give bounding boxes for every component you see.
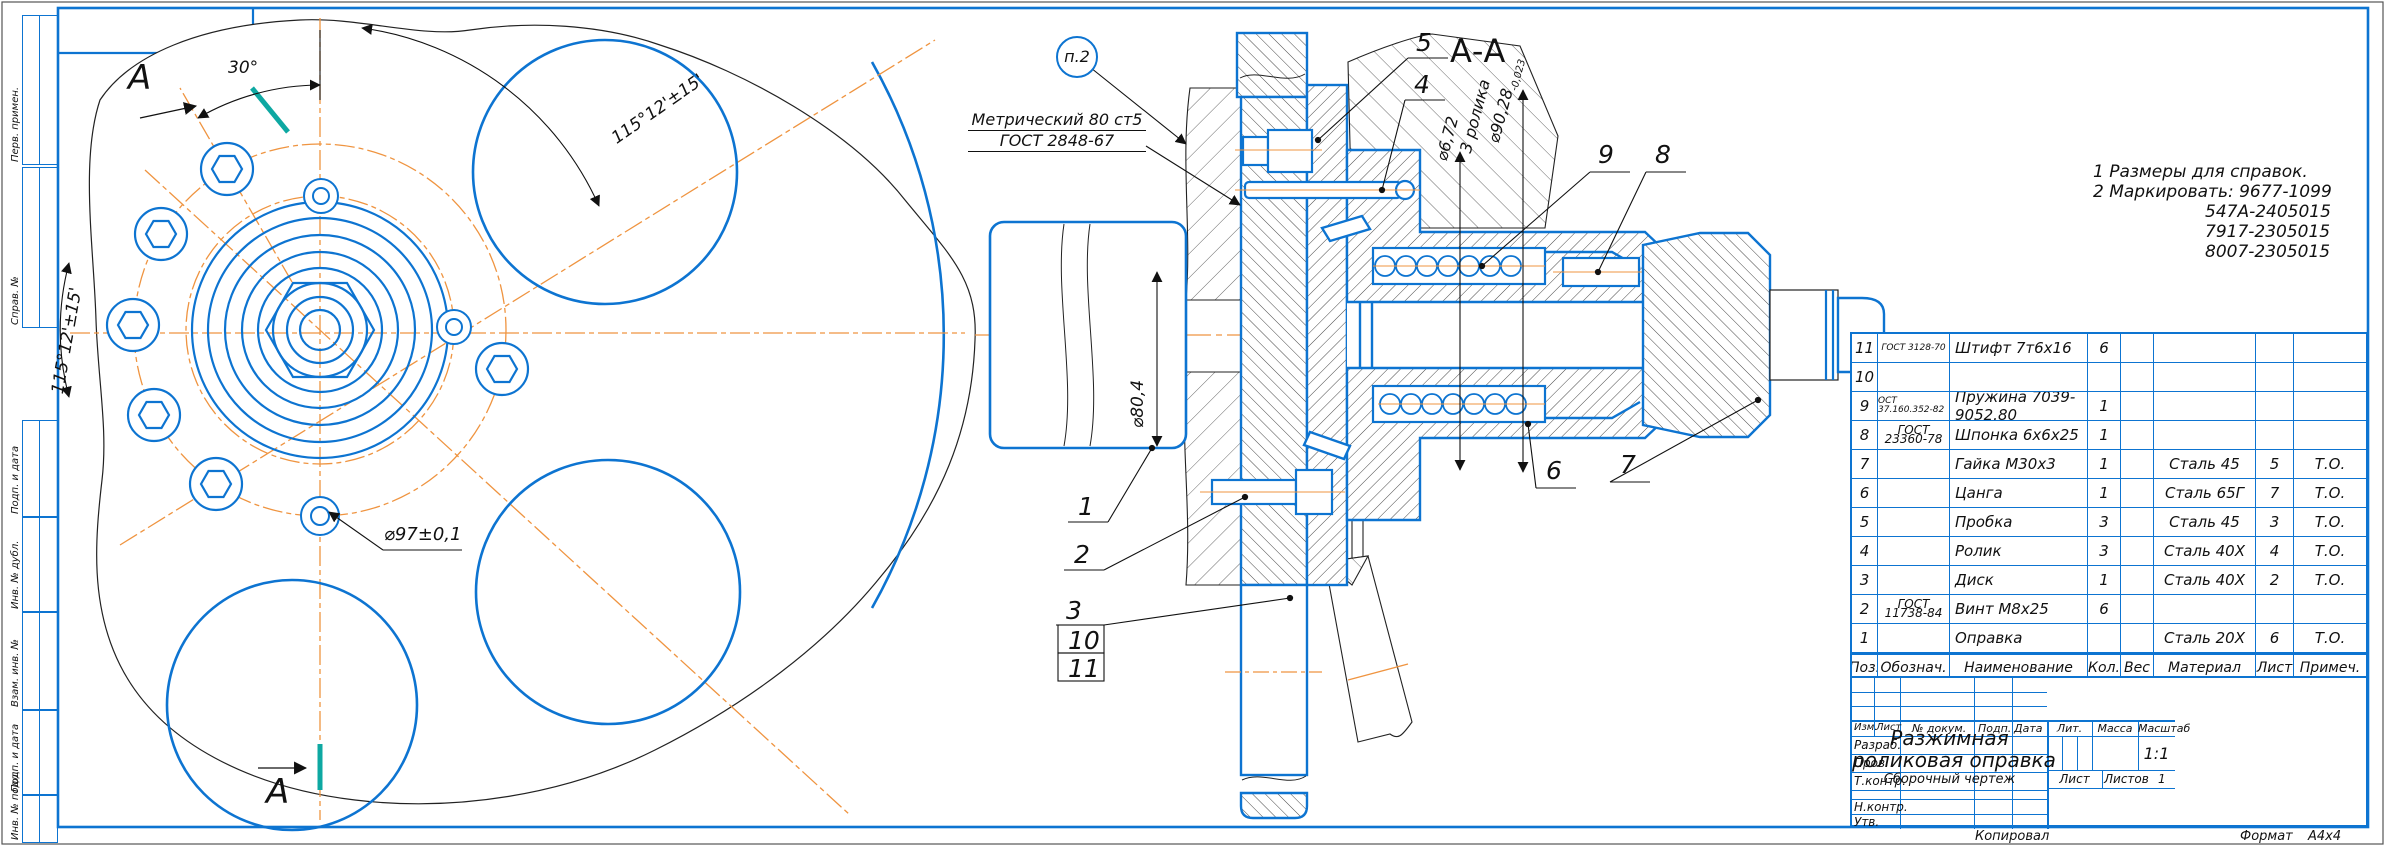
tb-mass-label: Масса: [2092, 722, 2138, 735]
cell-name: Цанга: [1950, 479, 2088, 508]
table-row: 3 Диск 1 Сталь 40Х 2 Т.О.: [1852, 566, 2366, 595]
cell-pos: 3: [1852, 566, 1878, 595]
table-row: 11 ГОСТ 3128-70 Штифт 7т6х16 6: [1852, 334, 2366, 363]
cell-pos: 6: [1852, 479, 1878, 508]
doc-line: ОСТ 37.160.352-82: [1878, 397, 1949, 415]
table-row: 7 Гайка М30х3 1 Сталь 45 5 Т.О.: [1852, 450, 2366, 479]
cell-note: [2294, 334, 2366, 363]
cell-pos: 4: [1852, 537, 1878, 566]
title-block: Изм. Лист № докум. Подп. Дата Разраб. Пр…: [1850, 676, 2368, 827]
cell-name: Ролик: [1950, 537, 2088, 566]
callout-9: 9: [1598, 140, 1614, 169]
drawing-sheet: { "colors":{"line_blue":"#0d74d1","cente…: [0, 0, 2385, 846]
cell-doc: [1878, 450, 1950, 479]
cell-pos: 8: [1852, 421, 1878, 450]
cell-name: Гайка М30х3: [1950, 450, 2088, 479]
cell-doc: ГОСТ23360-78: [1878, 421, 1950, 450]
cell-qty: [2088, 363, 2121, 392]
cell-name: Диск: [1950, 566, 2088, 595]
keyway: [1553, 258, 1650, 286]
cell-sheet: [2256, 595, 2294, 624]
cell-pos: 7: [1852, 450, 1878, 479]
cell-material: [2154, 334, 2256, 363]
cell-note: Т.О.: [2294, 479, 2366, 508]
cell-qty: 1: [2088, 566, 2121, 595]
frame-label-inv-dubl: Инв. № дубл.: [22, 517, 58, 612]
cell-sheet: 4: [2256, 537, 2294, 566]
technical-notes: 1 Размеры для справок. 2 Маркировать: 96…: [2093, 162, 2332, 262]
note-line: 7917-2305015: [2205, 222, 2332, 242]
cell-doc: ГОСТ11738-84: [1878, 595, 1950, 624]
callout-3: 3: [1066, 596, 1082, 625]
footer-copied: Копировал: [1975, 829, 2049, 844]
cell-weight: [2121, 334, 2154, 363]
cell-pos: 11: [1852, 334, 1878, 363]
frame-label-vzam-inv: Взам. инв. №: [22, 612, 58, 710]
tb-lit-label: Лит.: [2047, 722, 2092, 735]
frame-label-text: Перв. примен.: [10, 87, 21, 162]
cell-name: Оправка: [1950, 624, 2088, 653]
cell-note: [2294, 421, 2366, 450]
callout-6: 6: [1546, 456, 1562, 485]
cell-note: Т.О.: [2294, 537, 2366, 566]
cell-sheet: [2256, 334, 2294, 363]
cell-sheet: 6: [2256, 624, 2294, 653]
callout-4: 4: [1414, 70, 1430, 99]
frame-label-sprav-no: Справ. №: [22, 167, 58, 328]
tb-doc-type: Сборочный чертеж: [1852, 772, 2047, 787]
cell-qty: 1: [2088, 450, 2121, 479]
cell-sheet: [2256, 421, 2294, 450]
cell-sheet: 7: [2256, 479, 2294, 508]
cell-weight: [2121, 624, 2154, 653]
table-row: 2 ГОСТ11738-84 Винт М8х25 6: [1852, 595, 2366, 624]
dim-d97: ⌀97±0,1: [384, 524, 461, 545]
cell-qty: [2088, 624, 2121, 653]
callout-7: 7: [1620, 450, 1636, 479]
tb-sheets-label: Листов: [2104, 772, 2149, 786]
cell-sheet: [2256, 392, 2294, 421]
frame-label-podp-data-2: Подп. и дата: [22, 710, 58, 795]
cell-doc: [1878, 624, 1950, 653]
cell-sheet: 5: [2256, 450, 2294, 479]
frame-label-podp-data-1: Подп. и дата: [22, 420, 58, 517]
cell-material: Сталь 45: [2154, 450, 2256, 479]
cell-sheet: 3: [2256, 508, 2294, 537]
cell-doc: [1878, 537, 1950, 566]
cell-note: [2294, 363, 2366, 392]
cell-doc: ОСТ 37.160.352-82: [1878, 392, 1950, 421]
cell-qty: 6: [2088, 334, 2121, 363]
cell-note: Т.О.: [2294, 450, 2366, 479]
cell-doc: [1878, 566, 1950, 595]
cell-doc: [1878, 479, 1950, 508]
tb-sheets-value: 1: [2158, 772, 2166, 786]
cell-note: Т.О.: [2294, 508, 2366, 537]
cell-weight: [2121, 392, 2154, 421]
cell-weight: [2121, 595, 2154, 624]
dim-d80: ⌀80,4: [1128, 380, 1148, 428]
section-arrow-label-top: A: [128, 58, 151, 98]
cell-material: Сталь 40Х: [2154, 566, 2256, 595]
tb-scale-value: 1:1: [2138, 744, 2175, 763]
tb-product-line2: роликовая оправка: [1852, 748, 2047, 772]
thread-designation-line1: Метрический 80 ст5: [968, 110, 1146, 131]
cell-name: Шпонка 6х6х25: [1950, 421, 2088, 450]
cell-pos: 2: [1852, 595, 1878, 624]
callout-11: 11: [1068, 654, 1100, 683]
table-row: 9 ОСТ 37.160.352-82 Пружина 7039-9052.80…: [1852, 392, 2366, 421]
cell-pos: 10: [1852, 363, 1878, 392]
cell-pos: 9: [1852, 392, 1878, 421]
dim-30deg: 30°: [228, 58, 258, 78]
cell-doc: [1878, 363, 1950, 392]
callout-1: 1: [1078, 492, 1094, 521]
table-row: 5 Пробка 3 Сталь 45 3 Т.О.: [1852, 508, 2366, 537]
cell-material: Сталь 40Х: [2154, 537, 2256, 566]
tb-product-line1: Разжимная: [1852, 726, 2047, 750]
frame-label-text: Инв. № дубл.: [10, 541, 21, 609]
note-balloon: п.2: [1056, 36, 1098, 78]
cell-weight: [2121, 479, 2154, 508]
nut-part: [1643, 233, 1770, 437]
cell-doc: [1878, 508, 1950, 537]
cell-note: Т.О.: [2294, 566, 2366, 595]
tb-scale-label: Масштаб: [2138, 722, 2175, 735]
table-row: 8 ГОСТ23360-78 Шпонка 6х6х25 1: [1852, 421, 2366, 450]
cell-qty: 6: [2088, 595, 2121, 624]
cell-note: [2294, 595, 2366, 624]
table-row: 6 Цанга 1 Сталь 65Г 7 Т.О.: [1852, 479, 2366, 508]
table-row: 4 Ролик 3 Сталь 40Х 4 Т.О.: [1852, 537, 2366, 566]
cell-sheet: 2: [2256, 566, 2294, 595]
cell-material: [2154, 363, 2256, 392]
cell-doc: ГОСТ 3128-70: [1878, 334, 1950, 363]
cell-qty: 1: [2088, 421, 2121, 450]
footer-format-value: А4х4: [2308, 829, 2341, 844]
note-line: 547А-2405015: [2205, 202, 2332, 222]
cell-weight: [2121, 537, 2154, 566]
callout-8: 8: [1655, 140, 1671, 169]
table-row: 10: [1852, 363, 2366, 392]
cell-name: Штифт 7т6х16: [1950, 334, 2088, 363]
cell-weight: [2121, 421, 2154, 450]
cell-material: Сталь 20Х: [2154, 624, 2256, 653]
cell-weight: [2121, 363, 2154, 392]
frame-label-text: Взам. инв. №: [10, 639, 21, 707]
frame-label-text: Подп. и дата: [10, 446, 21, 514]
table-row: 1 Оправка Сталь 20Х 6 Т.О.: [1852, 624, 2366, 653]
frame-label-text: Справ. №: [10, 276, 21, 325]
cell-pos: 1: [1852, 624, 1878, 653]
thread-designation-line2: ГОСТ 2848-67: [968, 131, 1146, 152]
cell-note: [2294, 392, 2366, 421]
cell-weight: [2121, 508, 2154, 537]
cell-material: Сталь 65Г: [2154, 479, 2256, 508]
cell-note: Т.О.: [2294, 624, 2366, 653]
cell-weight: [2121, 450, 2154, 479]
doc-line: 11738-84: [1885, 609, 1943, 618]
note-line: 2 Маркировать: 9677-1099: [2093, 182, 2332, 202]
cell-name: Пробка: [1950, 508, 2088, 537]
cell-sheet: [2256, 363, 2294, 392]
cell-name: [1950, 363, 2088, 392]
cell-pos: 5: [1852, 508, 1878, 537]
callout-5: 5: [1416, 28, 1432, 57]
cell-material: [2154, 392, 2256, 421]
cell-qty: 3: [2088, 537, 2121, 566]
tb-sheet-label: Лист: [2047, 772, 2102, 786]
tb-role-utv: Утв.: [1854, 815, 1879, 829]
doc-line: 23360-78: [1885, 435, 1943, 444]
frame-label-perv-primen: Перв. примен.: [22, 15, 58, 165]
cell-qty: 3: [2088, 508, 2121, 537]
frame-label-text: Инв. № подл.: [10, 771, 21, 840]
callout-10: 10: [1068, 626, 1100, 655]
cell-qty: 1: [2088, 392, 2121, 421]
cell-name: Пружина 7039-9052.80: [1950, 392, 2088, 421]
note-line: 1 Размеры для справок.: [2093, 162, 2332, 182]
callout-2: 2: [1074, 540, 1090, 569]
section-title: А-А: [1450, 32, 1505, 70]
section-arrow-label-bottom: A: [266, 772, 289, 812]
cell-weight: [2121, 566, 2154, 595]
frame-label-inv-podl: Инв. № подл.: [22, 795, 58, 843]
note-line: 8007-2305015: [2205, 242, 2332, 262]
doc-line: ГОСТ 3128-70: [1881, 344, 1945, 353]
cell-material: Сталь 45: [2154, 508, 2256, 537]
tb-role-nkontr: Н.контр.: [1854, 800, 1908, 814]
cell-qty: 1: [2088, 479, 2121, 508]
footer-format-label: Формат: [2240, 829, 2293, 844]
cell-material: [2154, 595, 2256, 624]
cell-material: [2154, 421, 2256, 450]
cell-name: Винт М8х25: [1950, 595, 2088, 624]
parts-table: 11 ГОСТ 3128-70 Штифт 7т6х16 6 10 9 ОСТ …: [1850, 332, 2368, 682]
thread-designation: Метрический 80 ст5 ГОСТ 2848-67: [968, 110, 1146, 152]
